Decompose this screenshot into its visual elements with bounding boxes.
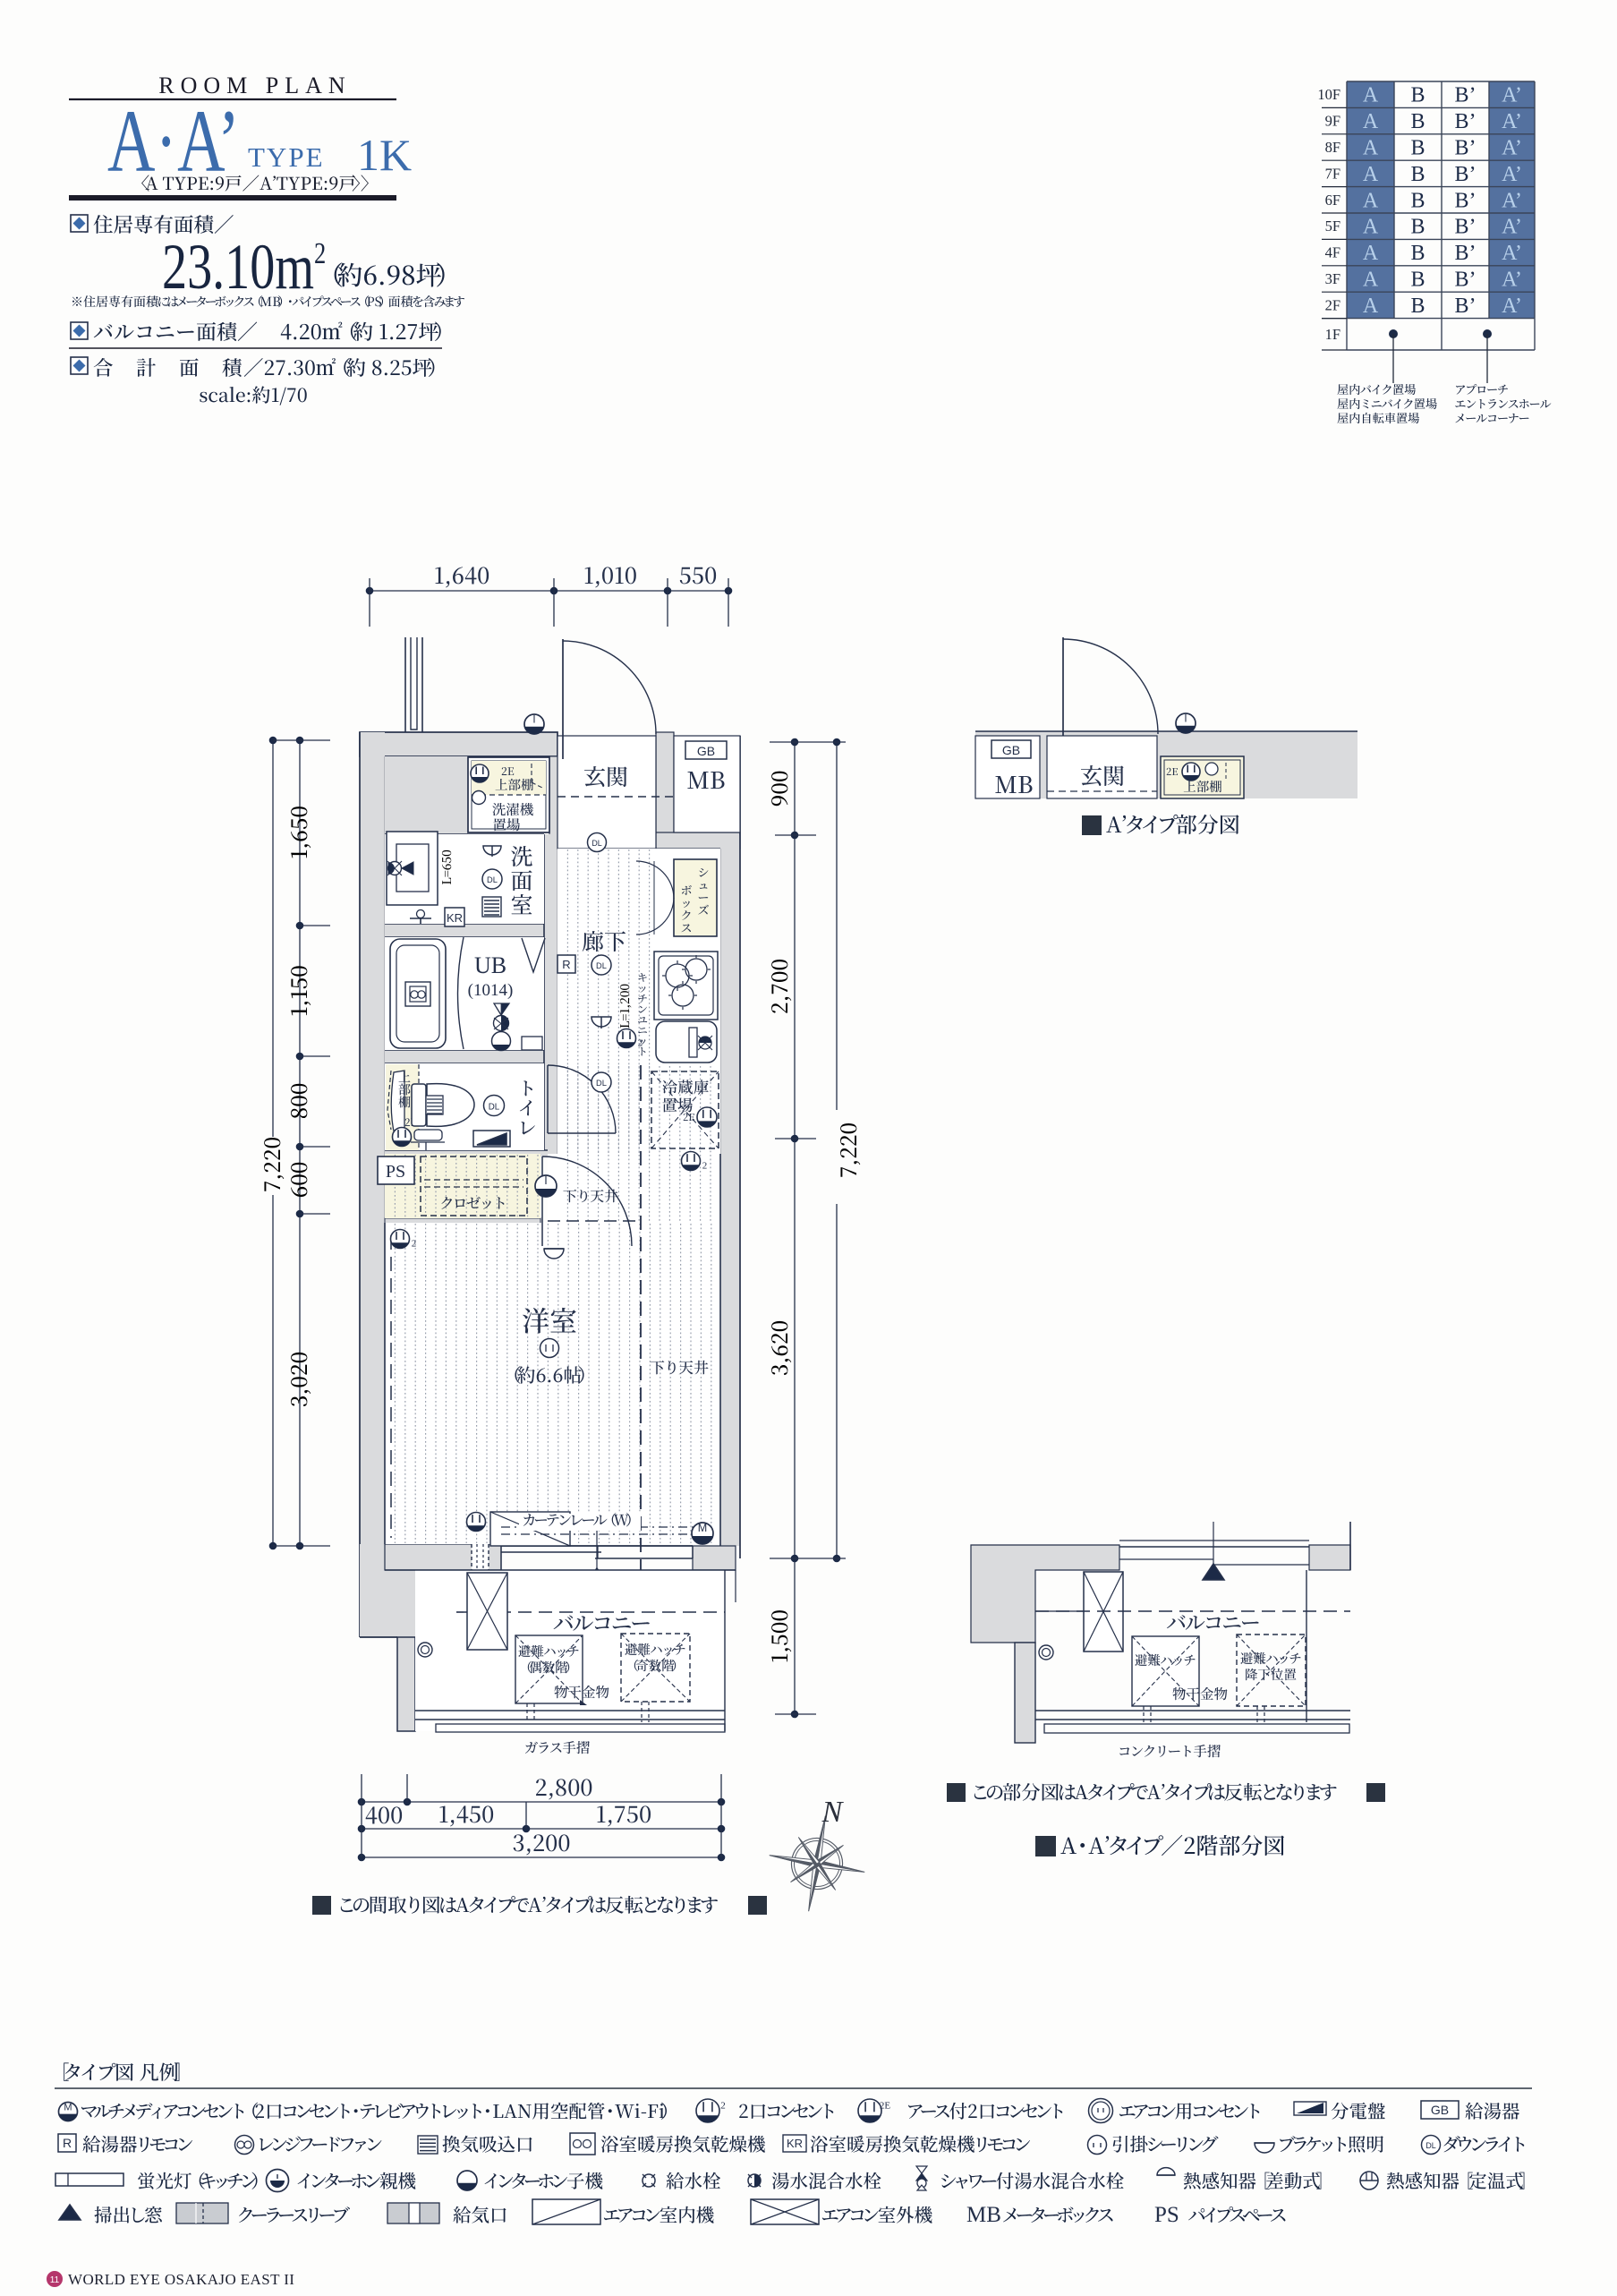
svg-text:B’: B’ (1455, 189, 1477, 212)
svg-text:8F: 8F (1325, 139, 1340, 156)
svg-text:B: B (1410, 84, 1425, 107)
svg-text:B: B (1410, 163, 1425, 186)
svg-text:B: B (1410, 189, 1425, 212)
svg-text:A’: A’ (1502, 294, 1522, 318)
svg-text:DL: DL (596, 1079, 607, 1088)
svg-text:A·A’: A·A’ (107, 92, 240, 191)
svg-text:A’: A’ (1502, 163, 1522, 186)
svg-text:A’: A’ (1502, 189, 1522, 212)
svg-text:A’: A’ (1502, 137, 1522, 160)
svg-text:A’: A’ (1502, 84, 1522, 107)
svg-text:A: A (1363, 216, 1379, 239)
svg-text:1K: 1K (357, 130, 412, 180)
svg-text:B: B (1410, 137, 1425, 160)
svg-text:B: B (1410, 294, 1425, 318)
svg-text:2: 2 (412, 1238, 417, 1249)
svg-text:A’: A’ (1502, 269, 1522, 292)
svg-text:PS: PS (386, 1162, 405, 1182)
svg-text:B: B (1410, 216, 1425, 239)
svg-text:A’: A’ (1502, 110, 1522, 133)
svg-text:A: A (1363, 84, 1379, 107)
svg-text:B: B (1410, 269, 1425, 292)
svg-text:A: A (1363, 189, 1379, 212)
svg-text:I: I (544, 1174, 548, 1187)
svg-text:R: R (63, 2136, 72, 2150)
svg-text:A: A (1363, 269, 1379, 292)
svg-text:23.10m2: 23.10m2 (162, 230, 326, 302)
svg-text:B’: B’ (1455, 242, 1477, 265)
svg-text:R: R (562, 958, 570, 971)
svg-text:N: N (821, 1796, 845, 1829)
svg-text:2E: 2E (880, 2100, 891, 2111)
svg-text:KR: KR (787, 2137, 803, 2150)
svg-text:M: M (698, 1522, 708, 1534)
svg-text:1F: 1F (1325, 326, 1340, 343)
svg-text:B’: B’ (1455, 294, 1477, 318)
svg-text:B’: B’ (1455, 110, 1477, 133)
svg-text:5F: 5F (1325, 218, 1340, 235)
svg-text:B’: B’ (1455, 269, 1477, 292)
svg-text:(1014): (1014) (468, 981, 514, 1000)
svg-text:B’: B’ (1455, 163, 1477, 186)
svg-text:DL: DL (489, 1102, 500, 1112)
svg-text:A’: A’ (1502, 216, 1522, 239)
svg-text:A: A (1363, 110, 1379, 133)
svg-text:A: A (1363, 242, 1379, 265)
svg-text:GB: GB (1431, 2103, 1449, 2117)
svg-text:A’: A’ (1502, 242, 1522, 265)
svg-text:UB: UB (474, 952, 506, 978)
svg-text:2F: 2F (1325, 296, 1340, 313)
svg-text:2: 2 (702, 1160, 708, 1171)
svg-text:DL: DL (591, 839, 601, 848)
svg-text:GB: GB (1002, 743, 1020, 757)
svg-text:KR: KR (447, 911, 463, 925)
svg-text:B’: B’ (1455, 137, 1477, 160)
svg-text:B: B (1410, 242, 1425, 265)
svg-text:A: A (1363, 137, 1379, 160)
svg-text:B’: B’ (1455, 216, 1477, 239)
svg-text:9F: 9F (1325, 113, 1340, 130)
svg-text:DL: DL (487, 875, 498, 884)
svg-text:6F: 6F (1325, 192, 1340, 209)
svg-text:TYPE: TYPE (248, 141, 325, 173)
svg-text:DL: DL (596, 961, 607, 970)
svg-text:WORLD EYE OSAKAJO EAST II: WORLD EYE OSAKAJO EAST II (68, 2271, 294, 2288)
svg-text:2: 2 (720, 2100, 726, 2111)
svg-text:A: A (1363, 294, 1379, 318)
svg-text:MB: MB (966, 2203, 1001, 2227)
svg-text:GB: GB (697, 744, 715, 758)
svg-text:B’: B’ (1455, 84, 1477, 107)
svg-text:I: I (1184, 713, 1187, 724)
svg-text:10F: 10F (1317, 86, 1340, 103)
svg-text:2: 2 (638, 1037, 643, 1048)
svg-text:7F: 7F (1325, 165, 1340, 182)
svg-text:4F: 4F (1325, 244, 1340, 261)
svg-text:DL: DL (1426, 2141, 1435, 2150)
svg-text:I: I (532, 713, 535, 725)
svg-text:3F: 3F (1325, 270, 1340, 287)
svg-text:11: 11 (50, 2275, 60, 2285)
svg-text:PS: PS (1154, 2203, 1179, 2227)
svg-text:B: B (1410, 110, 1425, 133)
svg-text:A: A (1363, 163, 1379, 186)
svg-text:M: M (64, 2102, 72, 2112)
